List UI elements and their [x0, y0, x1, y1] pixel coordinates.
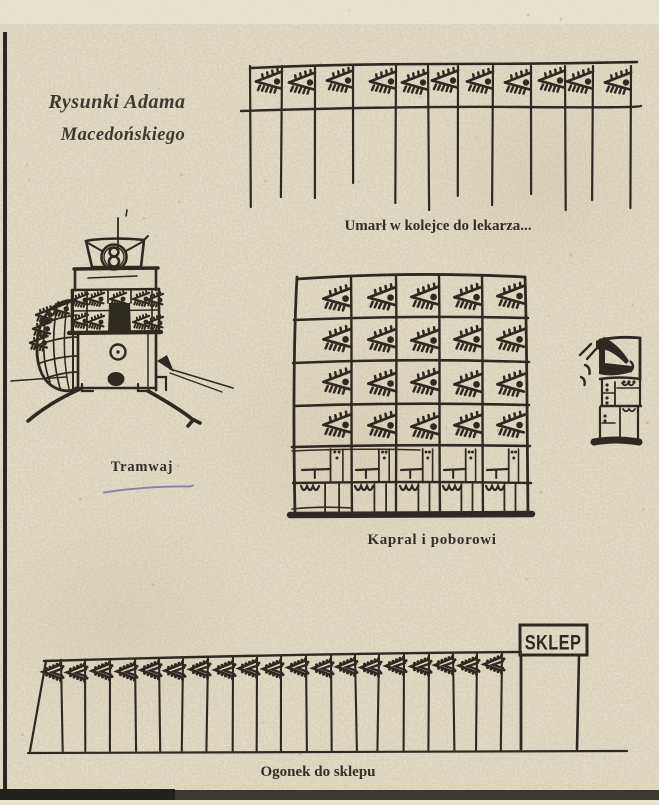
svg-text:Tramwaj: Tramwaj — [111, 459, 174, 475]
svg-text:SKLEP: SKLEP — [525, 631, 582, 654]
svg-text:Umarł w kolejce do lekarza...: Umarł w kolejce do lekarza... — [344, 218, 531, 234]
svg-text:Macedońskiego: Macedońskiego — [60, 125, 185, 145]
svg-text:Rysunki Adama: Rysunki Adama — [47, 91, 185, 113]
svg-text:Ogonek do sklepu: Ogonek do sklepu — [260, 764, 375, 780]
svg-text:Kapral i poborowi: Kapral i poborowi — [367, 532, 496, 548]
